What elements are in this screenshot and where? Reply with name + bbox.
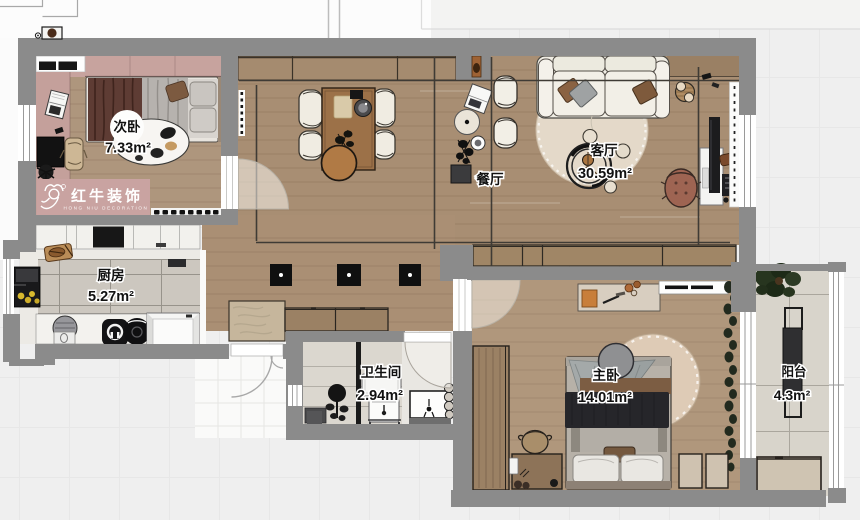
svg-text:厨房: 厨房 <box>98 267 125 283</box>
svg-text:30.59m²: 30.59m² <box>578 166 632 182</box>
svg-text:阳台: 阳台 <box>781 364 806 379</box>
svg-text:2.94m²: 2.94m² <box>357 388 403 404</box>
svg-text:次卧: 次卧 <box>114 119 141 135</box>
svg-text:客厅: 客厅 <box>590 142 619 158</box>
svg-text:5.27m²: 5.27m² <box>88 289 134 305</box>
svg-text:14.01m²: 14.01m² <box>578 390 632 406</box>
svg-text:HONG NIU DECORATION: HONG NIU DECORATION <box>64 206 149 211</box>
svg-text:卫生间: 卫生间 <box>361 364 402 380</box>
svg-text:7.33m²: 7.33m² <box>105 141 151 157</box>
svg-text:餐厅: 餐厅 <box>476 171 504 187</box>
svg-text:4.3m²: 4.3m² <box>774 387 811 403</box>
svg-text:主卧: 主卧 <box>593 367 621 383</box>
svg-text:红牛装饰: 红牛装饰 <box>71 187 143 205</box>
